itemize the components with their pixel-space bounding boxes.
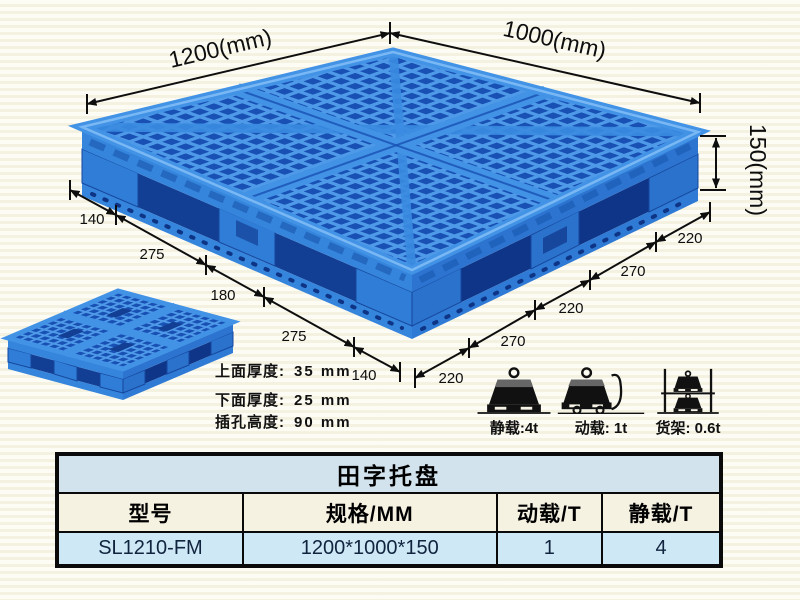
cell-spec-mm: 1200*1000*150 (243, 532, 497, 566)
spec-fork-hole-height: 插孔高度:90 mm (215, 411, 352, 432)
header-spec-mm: 规格/MM (243, 493, 497, 532)
right-chain-label-3: 270 (620, 263, 645, 280)
spec-value: 90 mm (294, 414, 352, 431)
spec-value: 35 mm (294, 363, 352, 380)
spec-value: 25 mm (294, 392, 352, 409)
table-row: SL1210-FM 1200*1000*150 1 4 (57, 532, 721, 566)
cell-model: SL1210-FM (57, 532, 243, 566)
spec-top-thickness: 上面厚度:35 mm (215, 360, 352, 381)
table-header-row: 型号 规格/MM 动载/T 静载/T (57, 493, 721, 532)
cell-dynamic-load: 1 (497, 532, 603, 566)
cell-static-load: 4 (602, 532, 721, 566)
dim-width-label: 1200(mm) (166, 24, 274, 73)
rack-load-icon (649, 366, 727, 414)
spec-label: 插孔高度: (215, 414, 285, 431)
left-chain-label-2: 180 (210, 287, 235, 304)
left-chain-label-3: 275 (281, 328, 306, 345)
spec-table: 田字托盘 型号 规格/MM 动载/T 静载/T SL1210-FM 1200*1… (55, 452, 723, 568)
dynamic-load-cart-icon (555, 366, 647, 414)
pallet-spec-sheet: 1200(mm) 1000(mm) 150(mm) 140 275 180 27… (0, 0, 800, 600)
table-title: 田字托盘 (57, 454, 721, 493)
table-title-row: 田字托盘 (57, 454, 721, 493)
main-pallet-illustration (82, 52, 698, 339)
small-pallet-illustration (8, 291, 233, 400)
spec-label: 上面厚度: (215, 363, 285, 380)
spec-label: 下面厚度: (215, 392, 285, 409)
load-ratings: 静载:4t 动载: 1t (474, 366, 728, 438)
right-chain-label-4: 220 (677, 230, 702, 247)
dynamic-load-rating: 动载: 1t (554, 366, 648, 438)
header-static-load: 静载/T (602, 493, 721, 532)
header-model: 型号 (57, 493, 243, 532)
right-chain-label-0: 220 (438, 370, 463, 387)
left-chain-label-1: 275 (139, 246, 164, 263)
static-load-label: 静载:4t (490, 417, 538, 438)
rack-load-rating: 货架: 0.6t (648, 366, 728, 438)
right-chain-label-1: 270 (500, 333, 525, 350)
right-chain-label-2: 220 (558, 300, 583, 317)
left-chain-label-4: 140 (351, 367, 376, 384)
left-chain-label-0: 140 (79, 211, 104, 228)
header-dynamic-load: 动载/T (497, 493, 603, 532)
static-load-rating: 静载:4t (474, 366, 554, 438)
spec-bottom-thickness: 下面厚度:25 mm (215, 389, 352, 410)
rack-load-label: 货架: 0.6t (655, 417, 720, 438)
static-load-weight-icon (475, 366, 553, 414)
dim-height-label: 150(mm) (745, 124, 771, 216)
dynamic-load-label: 动载: 1t (575, 417, 628, 438)
dim-depth-label: 1000(mm) (501, 15, 609, 63)
